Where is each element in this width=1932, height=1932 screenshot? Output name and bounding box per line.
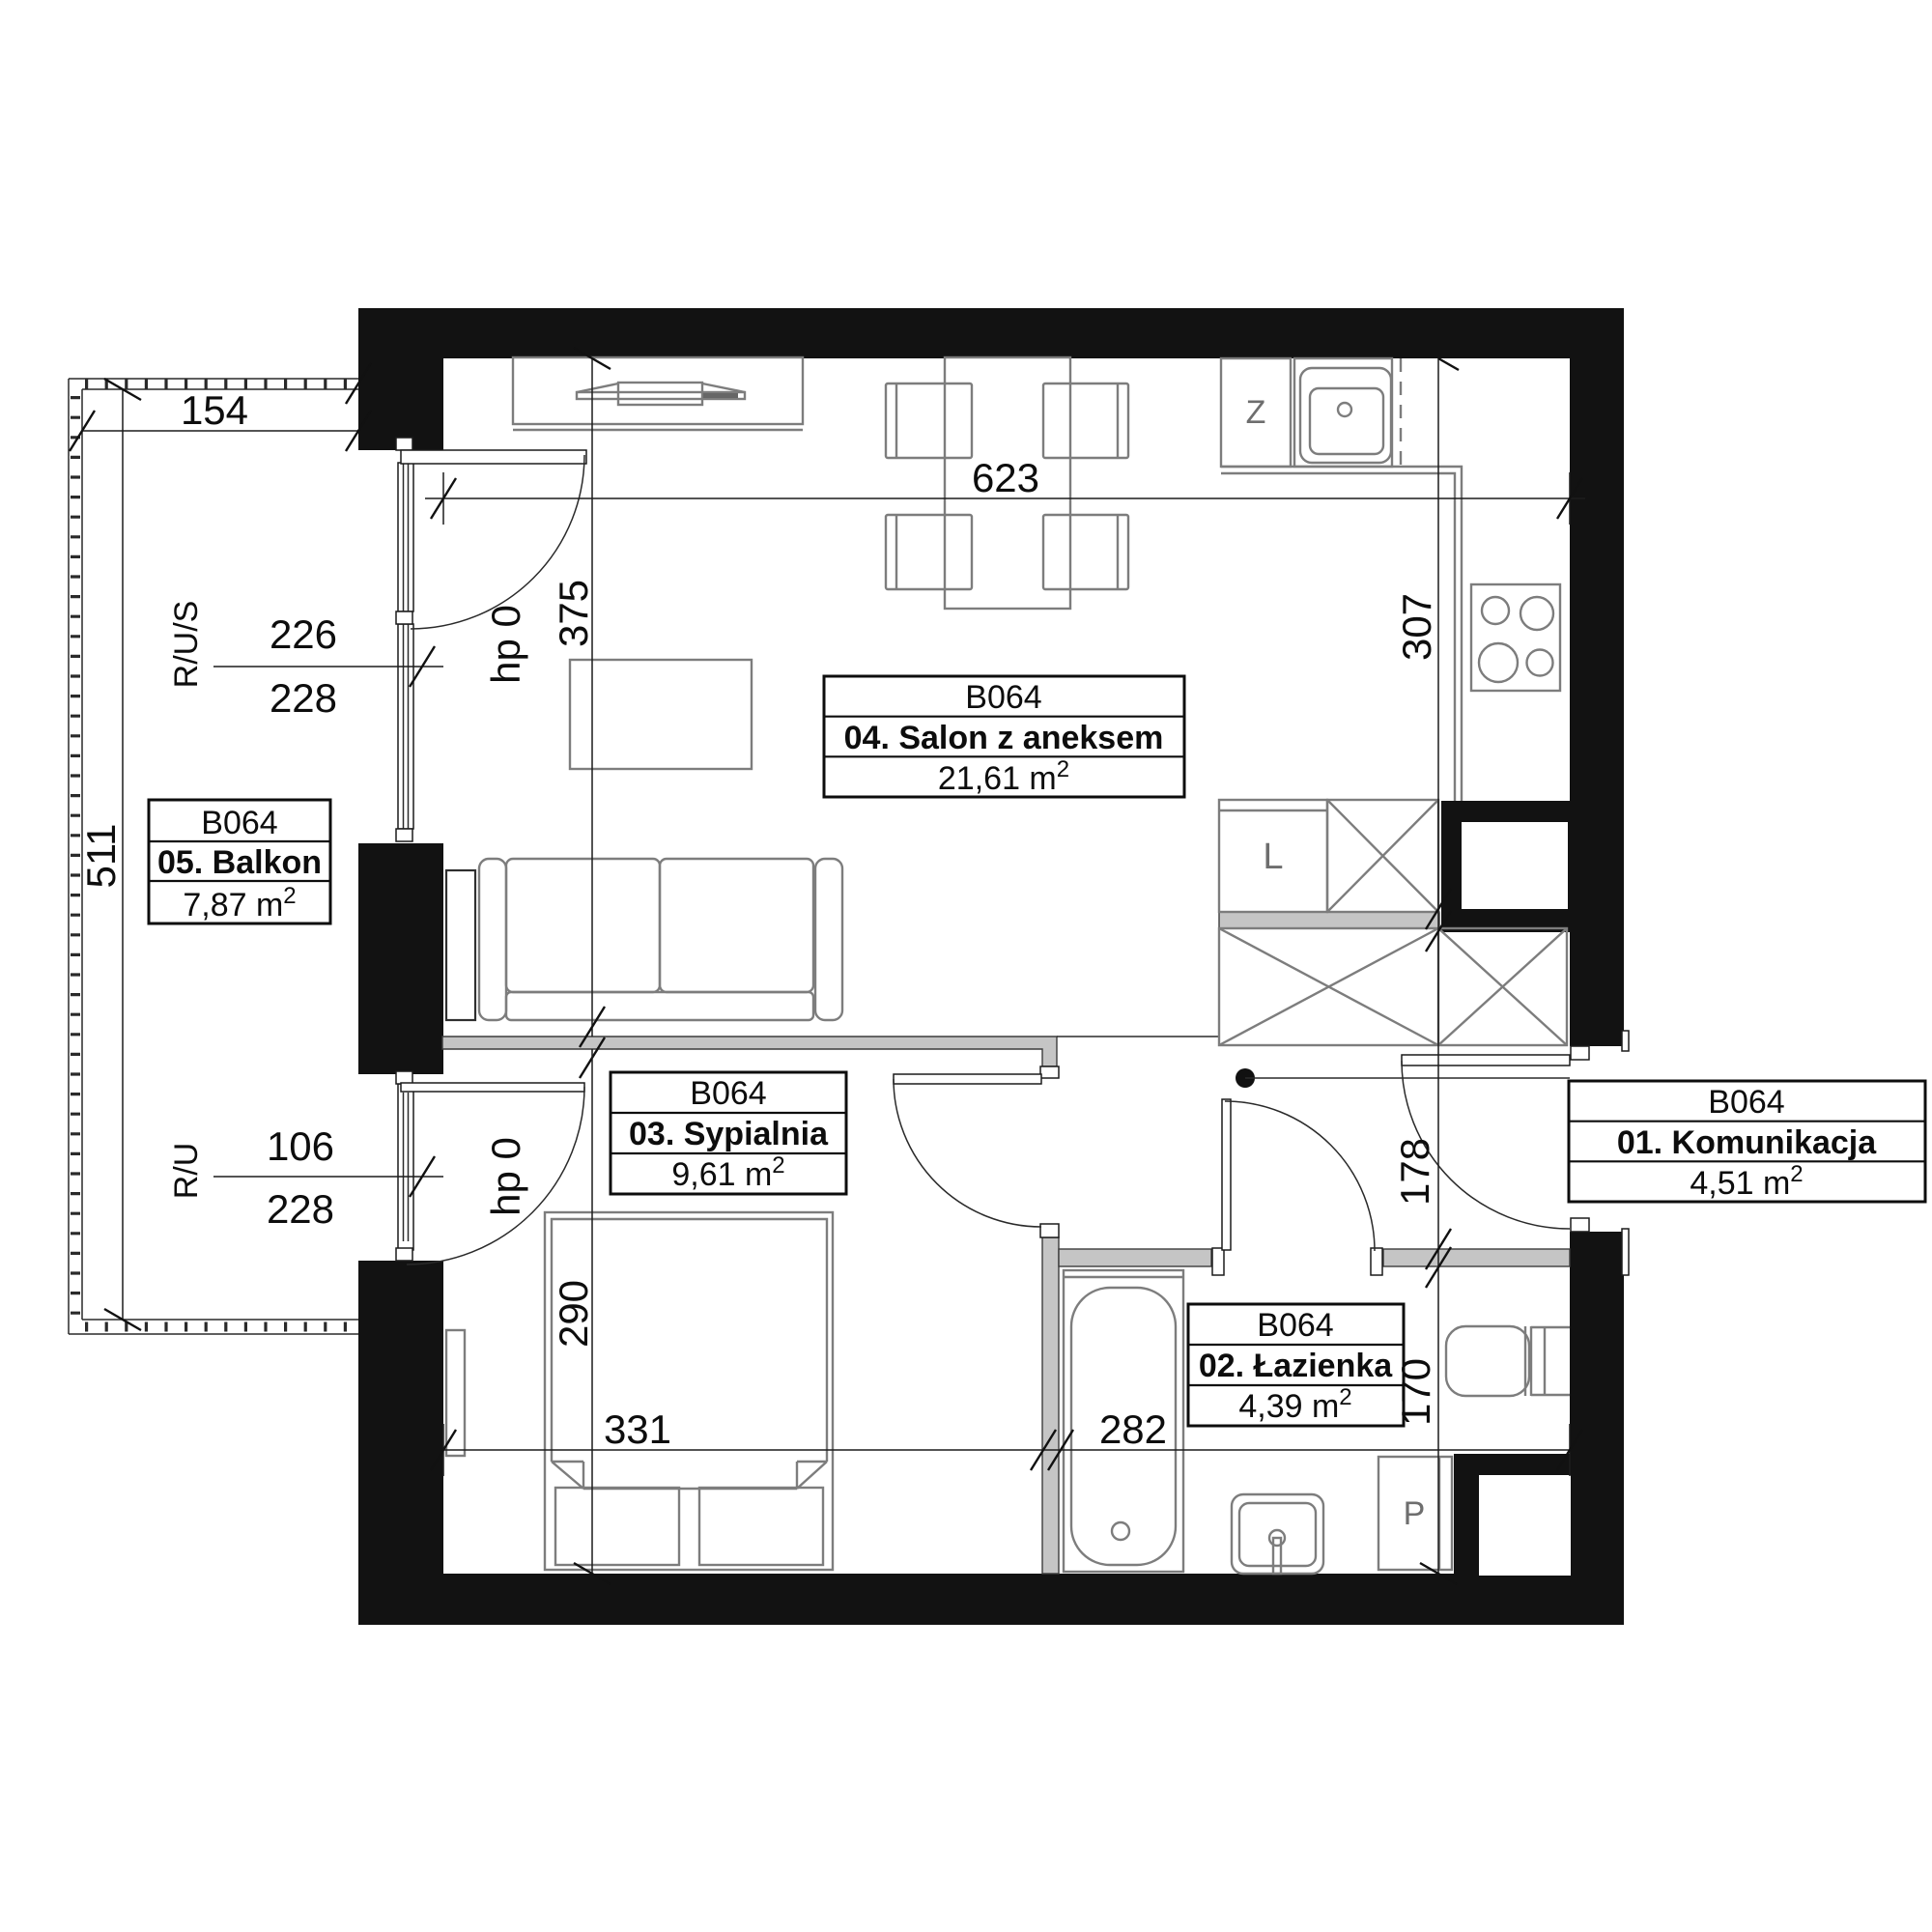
- svg-text:170: 170: [1393, 1358, 1438, 1426]
- svg-text:4,51 m2: 4,51 m2: [1690, 1161, 1803, 1202]
- svg-text:B064: B064: [690, 1075, 766, 1112]
- svg-text:R/U/S: R/U/S: [168, 601, 205, 689]
- svg-text:01. Komunikacja: 01. Komunikacja: [1617, 1124, 1877, 1161]
- svg-text:154: 154: [181, 387, 248, 433]
- svg-text:02. Łazienka: 02. Łazienka: [1199, 1348, 1393, 1384]
- svg-text:178: 178: [1392, 1138, 1437, 1206]
- svg-text:hp 0: hp 0: [483, 1137, 528, 1216]
- svg-text:228: 228: [267, 1186, 334, 1232]
- svg-text:307: 307: [1394, 593, 1439, 661]
- svg-text:4,39 m2: 4,39 m2: [1238, 1384, 1351, 1425]
- svg-text:282: 282: [1099, 1406, 1167, 1452]
- svg-text:9,61 m2: 9,61 m2: [671, 1152, 784, 1193]
- svg-text:P: P: [1404, 1495, 1426, 1532]
- svg-text:Z: Z: [1246, 394, 1266, 431]
- svg-text:623: 623: [972, 455, 1039, 500]
- svg-text:511: 511: [78, 824, 124, 889]
- svg-text:R/U: R/U: [168, 1143, 205, 1200]
- svg-text:L: L: [1263, 837, 1283, 877]
- svg-text:106: 106: [267, 1123, 334, 1169]
- svg-text:375: 375: [551, 580, 596, 647]
- svg-text:B064: B064: [1257, 1307, 1333, 1344]
- svg-text:B064: B064: [1708, 1084, 1784, 1121]
- svg-text:hp 0: hp 0: [483, 605, 528, 684]
- svg-text:B064: B064: [965, 679, 1041, 716]
- svg-text:331: 331: [604, 1406, 671, 1452]
- svg-text:03. Sypialnia: 03. Sypialnia: [629, 1116, 829, 1152]
- svg-text:04. Salon z aneksem: 04. Salon z aneksem: [844, 720, 1164, 756]
- svg-text:228: 228: [270, 675, 337, 721]
- svg-text:290: 290: [551, 1280, 596, 1348]
- svg-text:B064: B064: [201, 805, 277, 841]
- svg-text:226: 226: [270, 611, 337, 657]
- svg-text:7,87 m2: 7,87 m2: [183, 883, 296, 923]
- svg-text:21,61 m2: 21,61 m2: [938, 756, 1069, 797]
- svg-text:05. Balkon: 05. Balkon: [157, 844, 322, 881]
